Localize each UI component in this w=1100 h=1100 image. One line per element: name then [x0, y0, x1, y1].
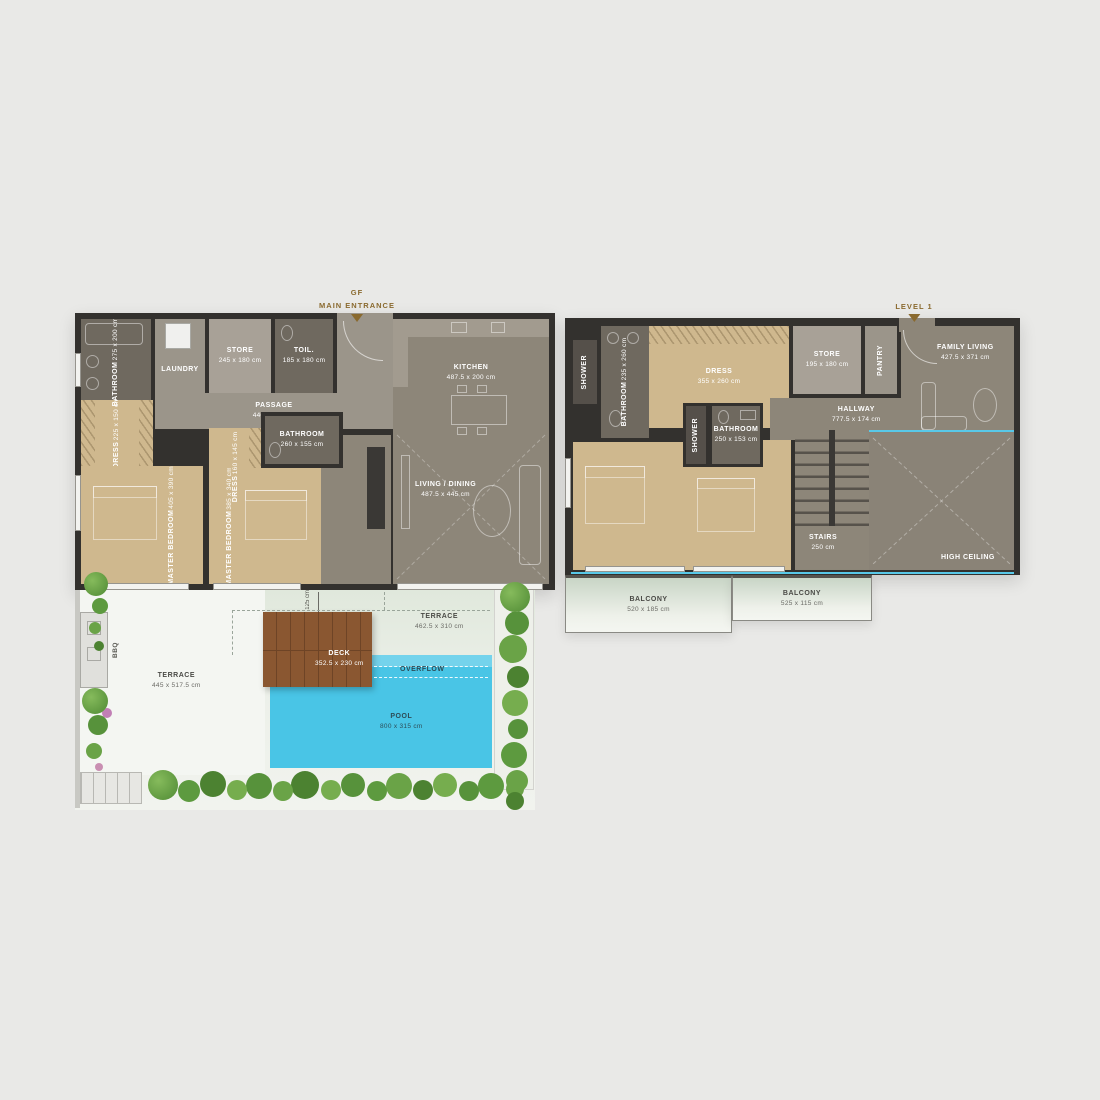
terrace-label: TERRACE 445 x 517.5 cm — [152, 672, 201, 690]
bbq-grill-icon — [87, 621, 101, 635]
gf-store: STORE 245 x 180 cm — [209, 319, 271, 393]
chair-icon — [457, 385, 467, 393]
gf-entrance-header: GF MAIN ENTRANCE — [319, 287, 395, 322]
room-label: STORE 245 x 180 cm — [219, 347, 262, 365]
bed-pillow-icon — [585, 466, 645, 478]
closet-icon — [649, 326, 789, 344]
gf-master-bedroom-2: MASTER BEDROOM 385 x 340 cm — [209, 468, 321, 584]
room-label: STAIRS 250 cm — [809, 534, 837, 552]
room-label: BALCONY 520 x 185 cm — [627, 596, 670, 614]
level1-label: LEVEL 1 — [895, 301, 932, 312]
deck-label: DECK 352.5 x 230 cm — [315, 650, 364, 668]
entrance-arrow-icon — [351, 314, 363, 322]
stair-railing — [367, 447, 385, 529]
kitchen-counter — [393, 319, 549, 337]
room-label: SHOWER — [692, 418, 701, 453]
room-label: LIVING / DINING 487.5 x 445 cm — [415, 481, 476, 499]
deck: DECK 352.5 x 230 cm — [263, 612, 372, 687]
room-label: LAUNDRY — [161, 366, 198, 375]
sink-icon — [86, 377, 99, 390]
room-label: BALCONY 525 x 115 cm — [781, 590, 823, 608]
sink-icon — [491, 322, 505, 333]
closet-icon — [81, 400, 95, 466]
room-label: DRESS 355 x 260 cm — [698, 368, 741, 386]
l1-bathroom-1: BATHROOM 235 x 260 cm — [601, 326, 649, 438]
room-label: MASTER BEDROOM 385 x 340 cm — [226, 468, 235, 584]
hedge-column-icon — [500, 582, 530, 612]
window — [75, 475, 81, 531]
coffee-table-icon — [973, 388, 997, 422]
l1-shower-1: SHOWER — [573, 340, 597, 404]
l1-pantry: PANTRY — [865, 326, 897, 394]
room-label: BATHROOM 260 x 155 cm — [280, 431, 325, 449]
chair-icon — [477, 385, 487, 393]
sink-icon — [86, 355, 99, 368]
room-label: DRESS 225 x 150 cm — [113, 400, 122, 466]
room-label: TOIL. 185 x 180 cm — [283, 347, 326, 365]
level1-header: LEVEL 1 — [895, 301, 932, 322]
void-edge-line — [869, 430, 1014, 432]
flower-shrub-icon — [82, 688, 108, 714]
room-label: BATHROOM 275 x 200 cm — [112, 319, 121, 406]
room-label: PANTRY — [877, 345, 886, 376]
sofa-icon — [921, 416, 967, 431]
room-label: BATHROOM 235 x 260 cm — [621, 338, 630, 426]
deck-offset-label: 125 cm — [305, 590, 311, 610]
bed-pillow-icon — [245, 490, 307, 501]
l1-balcony-2: BALCONY 525 x 115 cm — [732, 575, 872, 621]
high-ceiling-dashed-lines-icon — [869, 432, 1014, 570]
shrub-icon — [84, 572, 108, 596]
window — [213, 583, 301, 590]
level1-floorplan: SHOWER BATHROOM 235 x 260 cm DRESS 355 x… — [565, 318, 1020, 575]
room-label: FAMILY LIVING 427.5 x 371 cm — [937, 344, 994, 362]
setback-dashed-line — [384, 592, 385, 610]
garden-steps — [80, 772, 142, 804]
gf-kitchen: KITCHEN 487.5 x 200 cm — [393, 319, 549, 441]
l1-balcony-1: BALCONY 520 x 185 cm — [565, 575, 732, 633]
l1-shower-2: SHOWER — [683, 403, 709, 467]
chair-icon — [457, 427, 467, 435]
bed-pillow-icon — [93, 486, 157, 498]
l1-store: STORE 195 x 180 cm — [793, 326, 861, 394]
chair-icon — [477, 427, 487, 435]
l1-master-bedroom-1: MASTER BEDROOM 355 x 515 cm — [573, 442, 683, 570]
gf-toilet: TOIL. 185 x 180 cm — [275, 319, 333, 393]
l1-master-bedroom-2: MASTER BEDROOM 370 x 330 cm — [683, 464, 791, 570]
gf-laundry: LAUNDRY — [155, 319, 205, 393]
l1-bathroom-2: BATHROOM 250 x 153 cm — [709, 403, 763, 467]
gf-floorplan: BATHROOM 275 x 200 cm LAUNDRY STORE 245 … — [75, 313, 555, 590]
gf-entry-foyer — [337, 313, 393, 393]
bbq-sink-icon — [87, 647, 101, 661]
bbq-label: BBQ — [112, 642, 119, 658]
hob-icon — [451, 322, 467, 333]
dimension-line — [318, 592, 319, 612]
hedge-row-icon — [148, 770, 178, 800]
kitchen-counter — [393, 337, 408, 387]
sink-icon — [740, 410, 756, 420]
door-arc-icon — [903, 330, 937, 364]
room-label: BATHROOM 250 x 153 cm — [714, 426, 759, 444]
balcony-edge-line — [571, 572, 1014, 574]
floorplan-canvas: GF MAIN ENTRANCE BATHROOM 275 x 200 cm L… — [0, 0, 1100, 1100]
planter-strip — [494, 585, 534, 790]
bed-pillow-icon — [697, 478, 755, 489]
sofa-icon — [519, 465, 541, 565]
gf-label: GF — [351, 287, 363, 298]
room-label: HIGH CEILING — [941, 554, 995, 563]
sink-icon — [607, 332, 619, 344]
dining-table-icon — [451, 395, 507, 425]
room-label: KITCHEN 487.5 x 200 cm — [447, 364, 496, 382]
room-label: SHOWER — [581, 355, 590, 390]
overflow-label: OVERFLOW — [400, 666, 444, 675]
overflow-line-icon — [374, 677, 488, 678]
window — [565, 458, 571, 508]
gf-dress-1: DRESS 225 x 150 cm — [81, 400, 153, 466]
coffee-table-icon — [473, 485, 511, 537]
gf-master-bedroom-1: MASTER BEDROOM 405 x 390 cm — [81, 466, 203, 584]
setback-dashed-line — [232, 610, 490, 611]
bbq-counter — [80, 612, 108, 688]
level1-arrow-icon — [908, 314, 920, 322]
pool-label: POOL 800 x 315 cm — [380, 713, 423, 731]
shower-tray-icon — [165, 323, 191, 349]
tv-console-icon — [401, 455, 410, 529]
stair-railing — [829, 430, 835, 526]
terrace-label: TERRACE 462.5 x 310 cm — [415, 613, 464, 631]
main-entrance-label: MAIN ENTRANCE — [319, 300, 395, 311]
toilet-icon — [718, 410, 729, 424]
gf-living-dining: LIVING / DINING 487.5 x 445 cm — [393, 429, 549, 584]
room-label: HALLWAY 777.5 x 174 cm — [832, 406, 881, 424]
room-label: MASTER BEDROOM 405 x 390 cm — [168, 466, 177, 584]
closet-icon — [139, 400, 153, 466]
room-label: STORE 195 x 180 cm — [806, 351, 849, 369]
l1-high-ceiling: HIGH CEILING — [869, 432, 1014, 570]
door-arc-icon — [343, 321, 383, 361]
gf-bathroom-2: BATHROOM 260 x 155 cm — [261, 412, 343, 468]
gf-bathroom-1: BATHROOM 275 x 200 cm — [81, 319, 151, 406]
toilet-icon — [281, 325, 293, 341]
l1-stairs: STAIRS 250 cm — [795, 430, 869, 570]
setback-dashed-line — [232, 610, 233, 655]
window — [75, 353, 81, 387]
